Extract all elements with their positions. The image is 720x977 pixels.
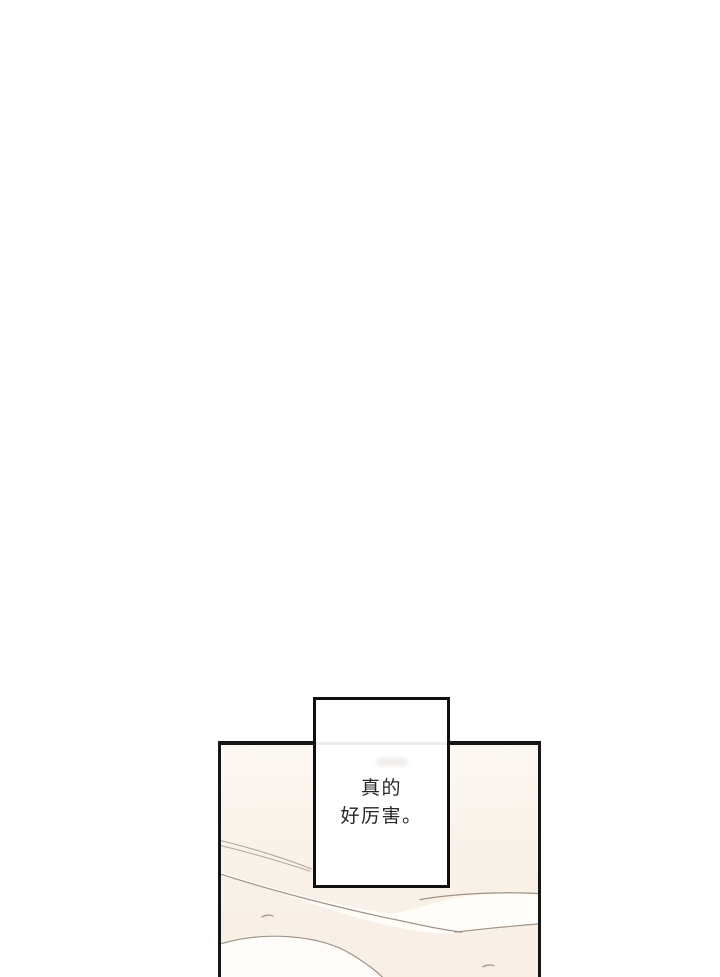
speech-text-line-2: 好厉害。 — [340, 803, 422, 831]
comic-page: 真的 好厉害。 — [0, 0, 720, 977]
art-mark-right — [483, 965, 494, 967]
art-white-corner — [221, 935, 387, 977]
speech-text: 真的 好厉害。 — [316, 710, 447, 895]
art-line-double-1 — [221, 841, 312, 869]
art-mark-left — [262, 915, 273, 917]
speech-text-line-1: 真的 — [361, 775, 402, 803]
art-line-double-2 — [221, 846, 310, 871]
speech-bubble: 真的 好厉害。 — [313, 697, 450, 888]
